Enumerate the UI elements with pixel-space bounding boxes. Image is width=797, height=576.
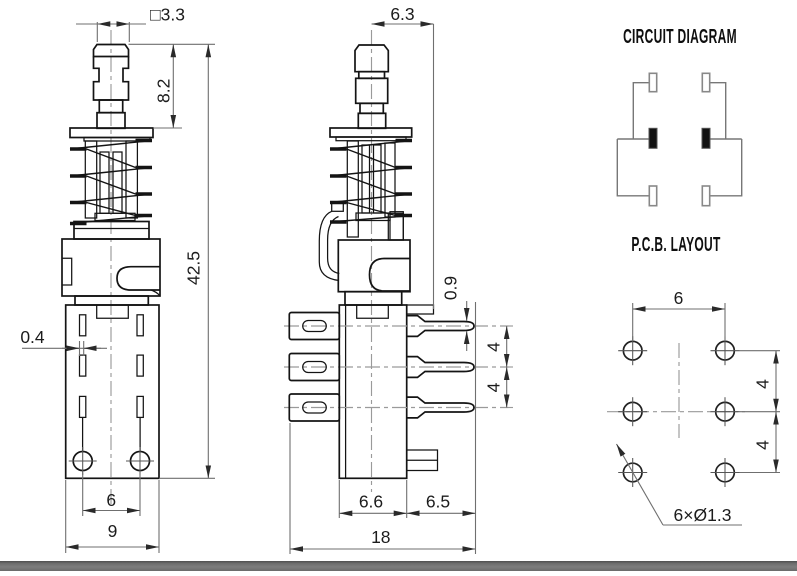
side-plunger [330,45,412,141]
dim-label-total-height: 42.5 [184,251,204,285]
circuit-diagram [617,73,741,205]
bottom-bar [0,561,797,571]
dim-label-overall-depth: 18 [371,527,390,547]
dim-label-cap-width: 6.3 [390,4,414,24]
dim-label-body-width: 9 [108,521,118,541]
pcb-layout-title: P.C.B. LAYOUT [616,234,736,257]
terminal-bottom-right [702,186,709,206]
side-solder-lugs [284,313,513,422]
front-view: □3.3 8.2 42.5 0.4 6 9 [20,5,215,554]
pcb-layout: 6 4 4 6×Ø1.3 [607,288,780,525]
terminal-top-right [702,73,709,91]
side-view: 6.3 0.9 4 4 6.6 6.5 18 [284,4,513,554]
side-dimensions: 6.3 0.9 4 4 6.6 6.5 18 [290,4,507,554]
side-upper-body [338,212,410,305]
hole-diameter-callout: 6×Ø1.3 [674,505,732,525]
dim-label-pin-thickness: 0.9 [441,276,461,300]
contact-left [649,128,657,148]
circuit-pole-right [702,73,742,205]
circuit-diagram-title: CIRCUIT DIAGRAM [620,26,740,49]
contact-right [702,128,710,148]
dim-label-cap-square: □3.3 [150,5,185,25]
side-lower-body [339,305,437,478]
terminal-bottom-left [649,186,656,206]
circuit-pole-left [617,73,657,205]
dim-label-terminal-width: 0.4 [20,327,45,347]
dim-label-hole-column-pitch: 6 [674,288,684,308]
front-lower-body [66,305,159,478]
drawing-canvas: □3.3 8.2 42.5 0.4 6 9 [0,0,797,576]
dim-label-hole-row-pitch-bottom: 4 [753,440,773,450]
dim-label-pin-pitch-bottom: 4 [484,382,504,392]
dim-label-body-depth: 6.6 [359,492,383,512]
dim-label-plunger-height: 8.2 [154,79,174,103]
terminal-top-left [649,73,656,91]
dim-label-pin-length: 6.5 [426,492,450,512]
side-latch-hook [319,203,343,280]
dim-label-peg-pitch: 6 [106,490,116,510]
dim-label-pin-pitch-top: 4 [484,342,504,352]
technical-drawing-sheet: □3.3 8.2 42.5 0.4 6 9 [0,0,797,576]
dim-label-hole-row-pitch-top: 4 [753,379,773,389]
